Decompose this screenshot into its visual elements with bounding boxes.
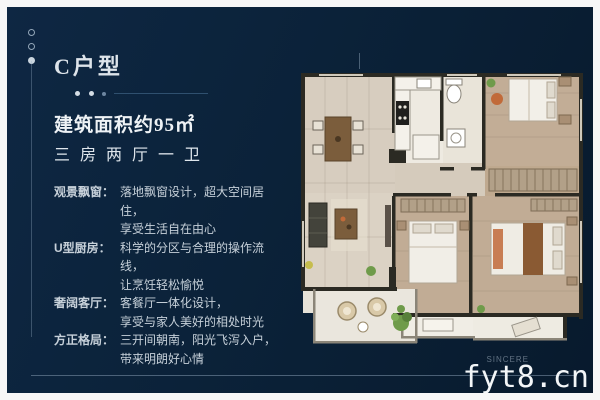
feature-text: 让烹饪轻松愉悦 (120, 276, 286, 295)
divider-line (114, 93, 208, 94)
unit-title: C户型 (54, 49, 123, 81)
divider-dot (102, 92, 106, 96)
feature-item-living-room: 奢阔客厅： 客餐厅一体化设计， 享受与家人美好的相处时光 (54, 294, 286, 331)
deco-vertical-line (31, 61, 32, 337)
building-area-text: 建筑面积约95㎡ (54, 110, 195, 137)
feature-label: U型厨房： (54, 239, 120, 295)
feature-text: 客餐厅一体化设计， (120, 294, 286, 313)
feature-text: 享受与家人美好的相处时光 (120, 313, 286, 332)
divider-dot (75, 91, 80, 96)
feature-list: 观景飘窗： 落地飘窗设计，超大空间居住， 享受生活自在由心 U型厨房： 科学的分… (54, 183, 286, 368)
floor-plan (285, 71, 585, 353)
feature-text: 三开间朝南，阳光飞泻入户， (120, 331, 286, 350)
feature-text: 落地飘窗设计，超大空间居住， (120, 183, 286, 220)
room-layout-text: 三房两厅一卫 (54, 141, 210, 165)
feature-text: 科学的分区与合理的操作流线， (120, 239, 286, 276)
feature-item-layout: 方正格局： 三开间朝南，阳光飞泻入户， 带来明朗好心情 (54, 331, 286, 368)
feature-text: 享受生活自在由心 (120, 220, 286, 239)
feature-item-bay-window: 观景飘窗： 落地飘窗设计，超大空间居住， 享受生活自在由心 (54, 183, 286, 239)
watermark-text: fyt8.cn (463, 360, 589, 393)
feature-label: 观景飘窗： (54, 183, 120, 239)
deco-dot (28, 43, 35, 50)
feature-item-kitchen: U型厨房： 科学的分区与合理的操作流线， 让烹饪轻松愉悦 (54, 239, 286, 295)
divider-dot (89, 91, 94, 96)
feature-label: 方正格局： (54, 331, 120, 368)
deco-tick-line (359, 53, 360, 69)
deco-dot (28, 29, 35, 36)
feature-text: 带来明朗好心情 (120, 350, 286, 369)
feature-label: 奢阔客厅： (54, 294, 120, 331)
title-divider (75, 91, 225, 97)
promo-panel: C户型 建筑面积约95㎡ 三房两厅一卫 观景飘窗： 落地飘窗设计，超大空间居住，… (7, 7, 593, 393)
deco-dots (28, 29, 36, 71)
